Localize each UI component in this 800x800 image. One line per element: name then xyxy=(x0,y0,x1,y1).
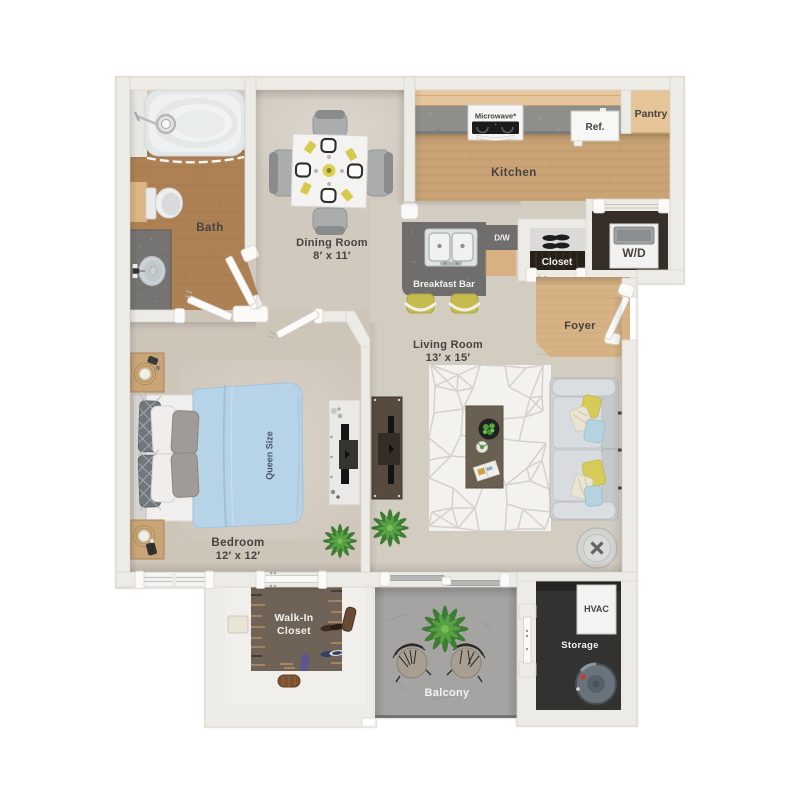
svg-text:Bedroom: Bedroom xyxy=(211,537,264,549)
svg-text:Living Room: Living Room xyxy=(413,339,483,351)
svg-text:Balcony: Balcony xyxy=(425,687,470,699)
svg-text:Kitchen: Kitchen xyxy=(491,167,537,179)
svg-text:Ref.: Ref. xyxy=(586,122,605,133)
svg-text:W/D: W/D xyxy=(622,246,646,260)
svg-text:HVAC: HVAC xyxy=(584,604,609,614)
svg-text:Microwave*: Microwave* xyxy=(475,112,516,121)
svg-text:Closet: Closet xyxy=(542,257,573,268)
svg-text:D/W: D/W xyxy=(494,234,510,243)
svg-text:Pantry: Pantry xyxy=(635,108,668,120)
svg-text:12′ x 12′: 12′ x 12′ xyxy=(216,550,261,562)
svg-text:13′ x 15′: 13′ x 15′ xyxy=(426,352,471,364)
svg-text:Breakfast Bar: Breakfast Bar xyxy=(413,279,475,290)
svg-text:Storage: Storage xyxy=(561,640,598,651)
svg-text:Bath: Bath xyxy=(196,222,224,234)
svg-text:Walk-In: Walk-In xyxy=(274,612,313,624)
svg-text:Foyer: Foyer xyxy=(564,320,596,332)
svg-text:Dining Room: Dining Room xyxy=(296,237,368,249)
svg-text:8′ x 11′: 8′ x 11′ xyxy=(313,250,351,262)
svg-text:Closet: Closet xyxy=(277,625,311,637)
svg-text:Queen Size: Queen Size xyxy=(265,431,275,480)
